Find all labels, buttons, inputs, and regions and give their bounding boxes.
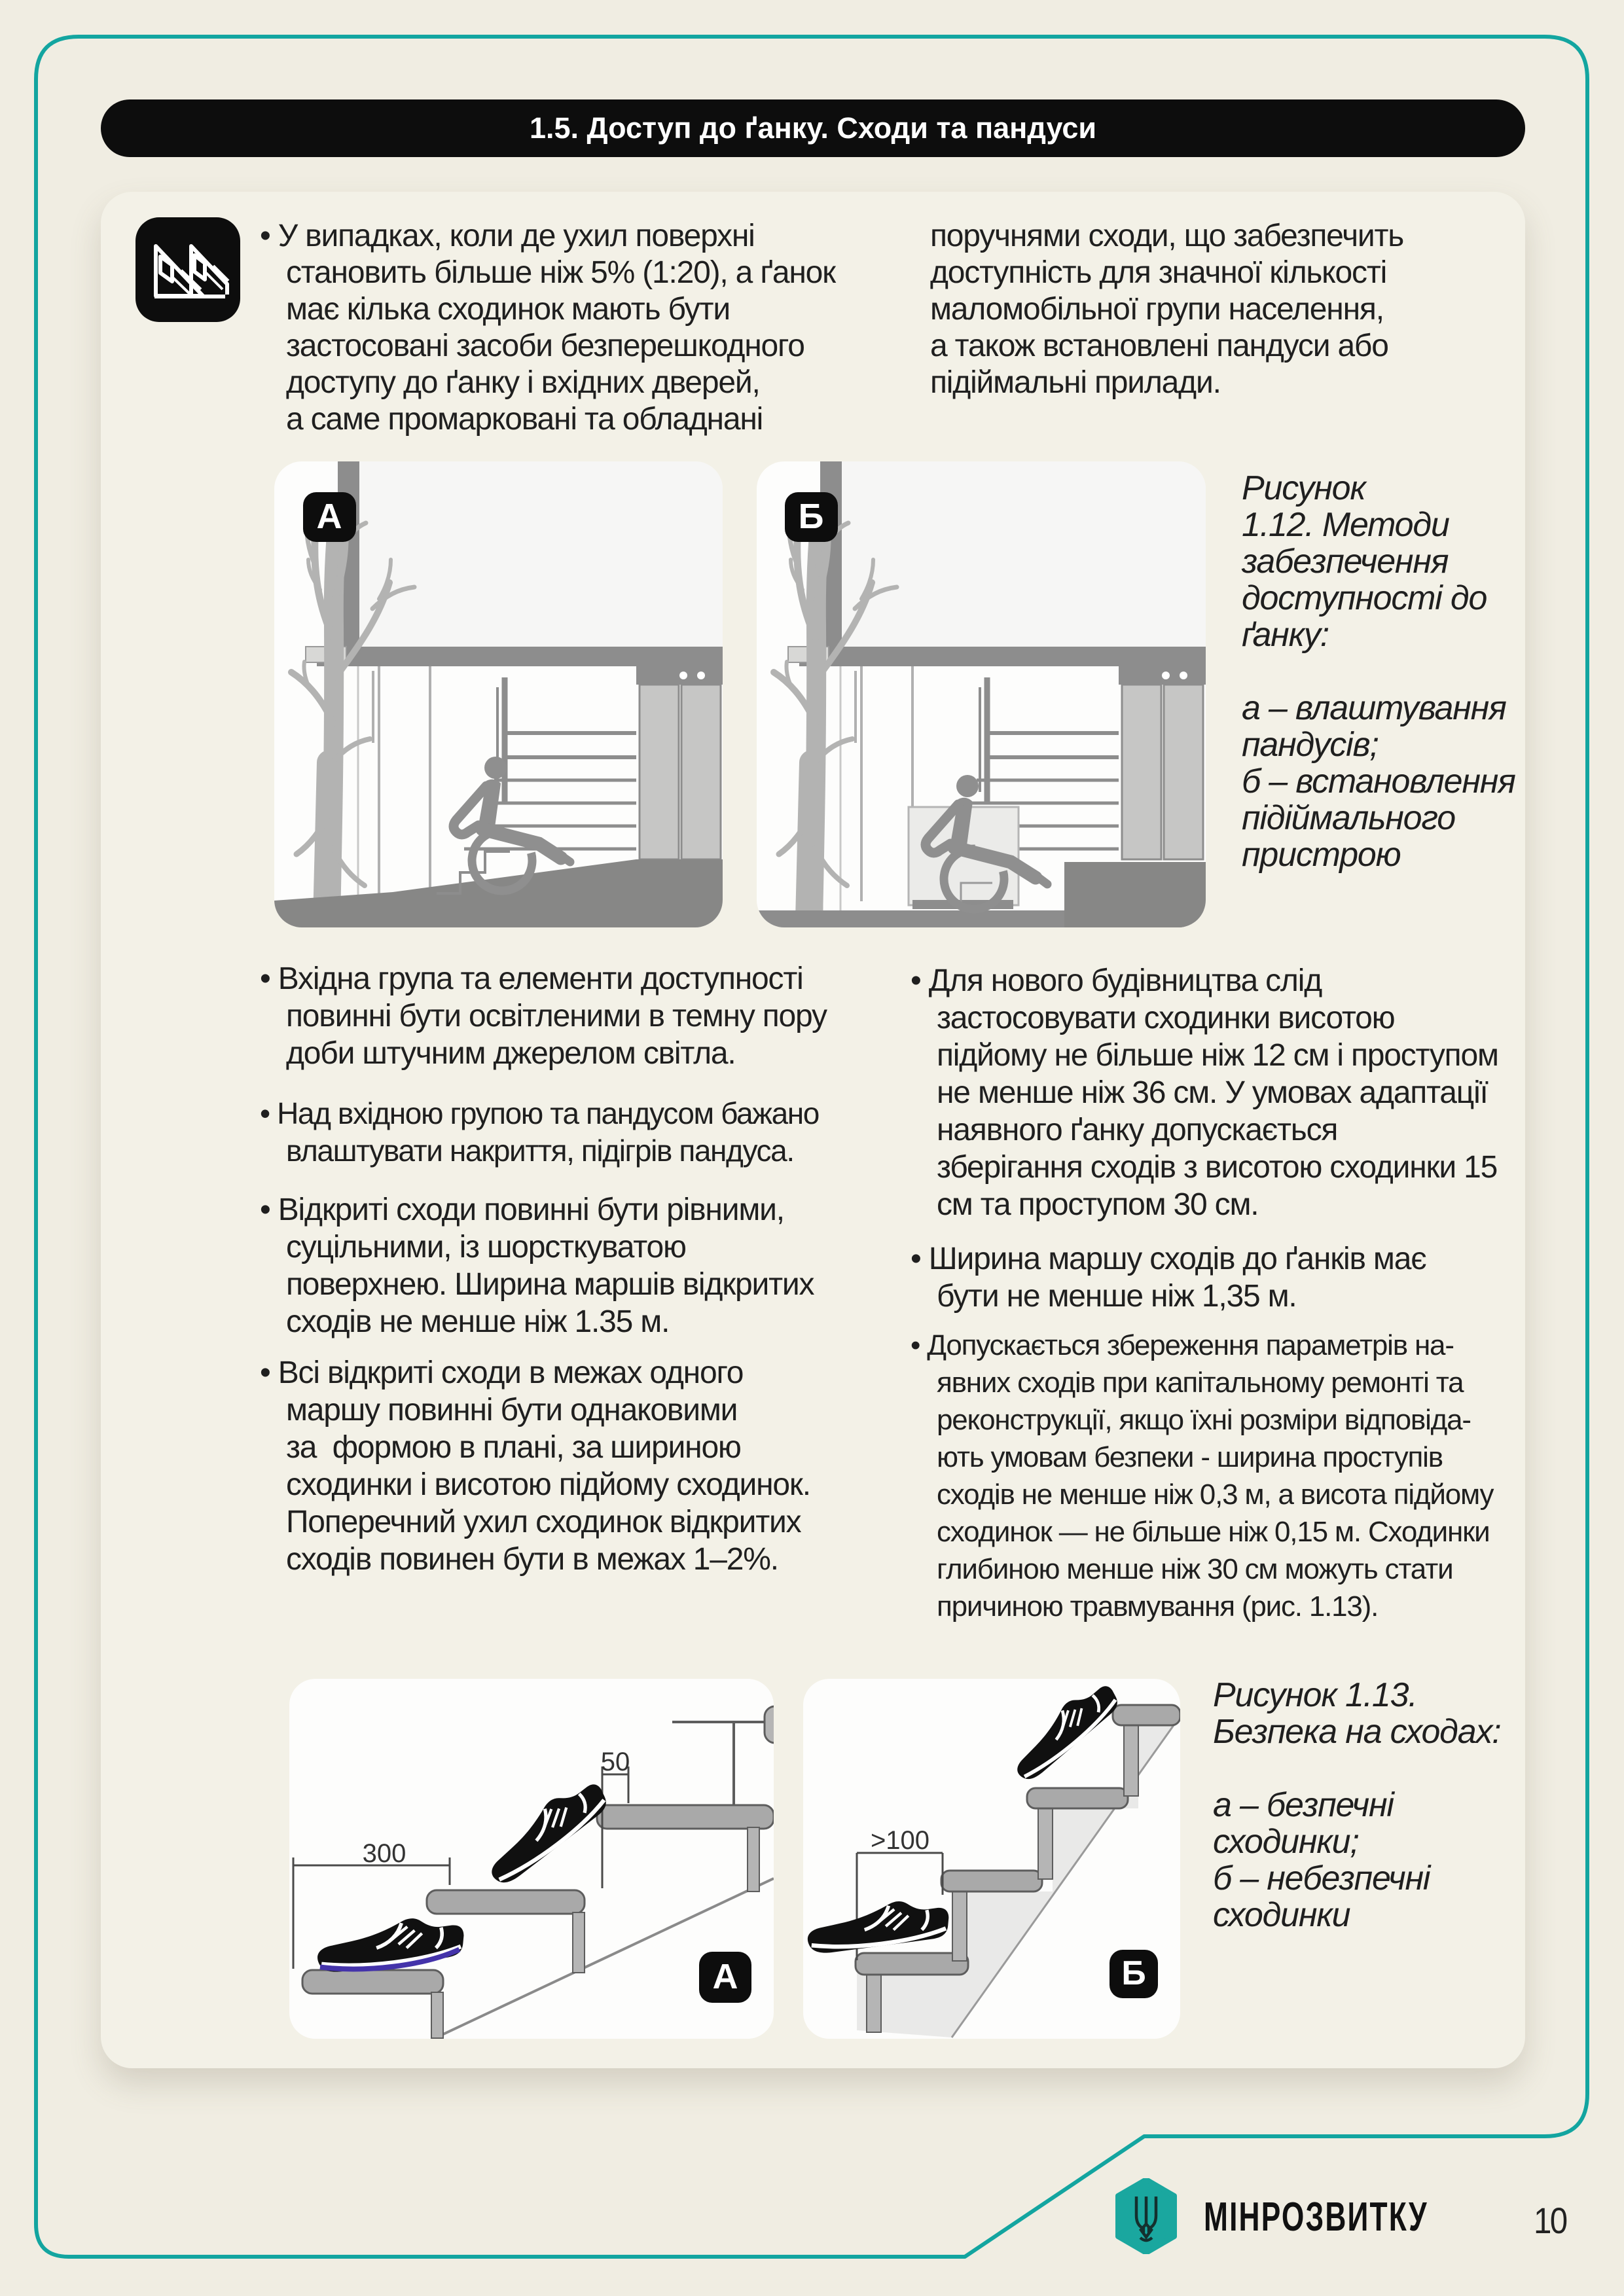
svg-text:>100: >100: [871, 1826, 929, 1855]
svg-text:Б: Б: [799, 497, 824, 536]
svg-text:300: 300: [363, 1839, 406, 1868]
svg-text:Б: Б: [1121, 1954, 1146, 1992]
svg-text:А: А: [713, 1957, 738, 1996]
svg-text:50: 50: [601, 1748, 630, 1776]
svg-text:А: А: [317, 497, 342, 536]
